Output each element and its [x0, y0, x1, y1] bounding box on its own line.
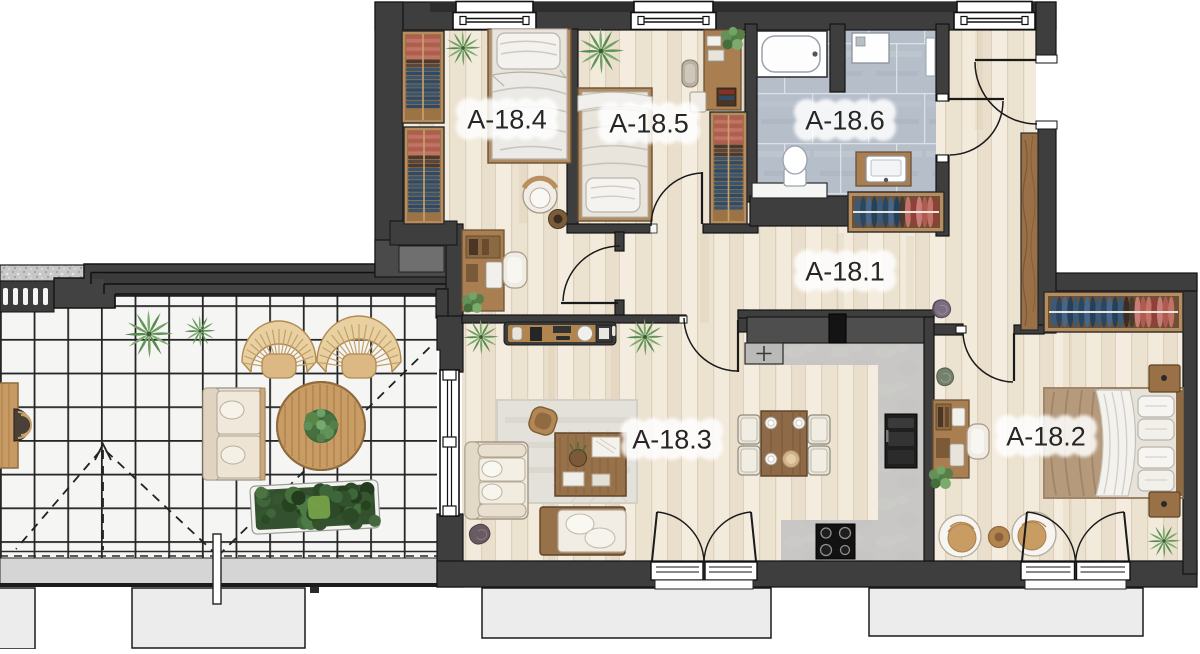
svg-text:A-18.2: A-18.2: [1006, 422, 1086, 452]
svg-text:A-18.1: A-18.1: [805, 257, 885, 287]
svg-text:A-18.3: A-18.3: [632, 425, 712, 455]
svg-text:A-18.6: A-18.6: [805, 106, 885, 136]
svg-text:A-18.5: A-18.5: [609, 109, 689, 139]
svg-text:A-18.4: A-18.4: [467, 105, 547, 135]
